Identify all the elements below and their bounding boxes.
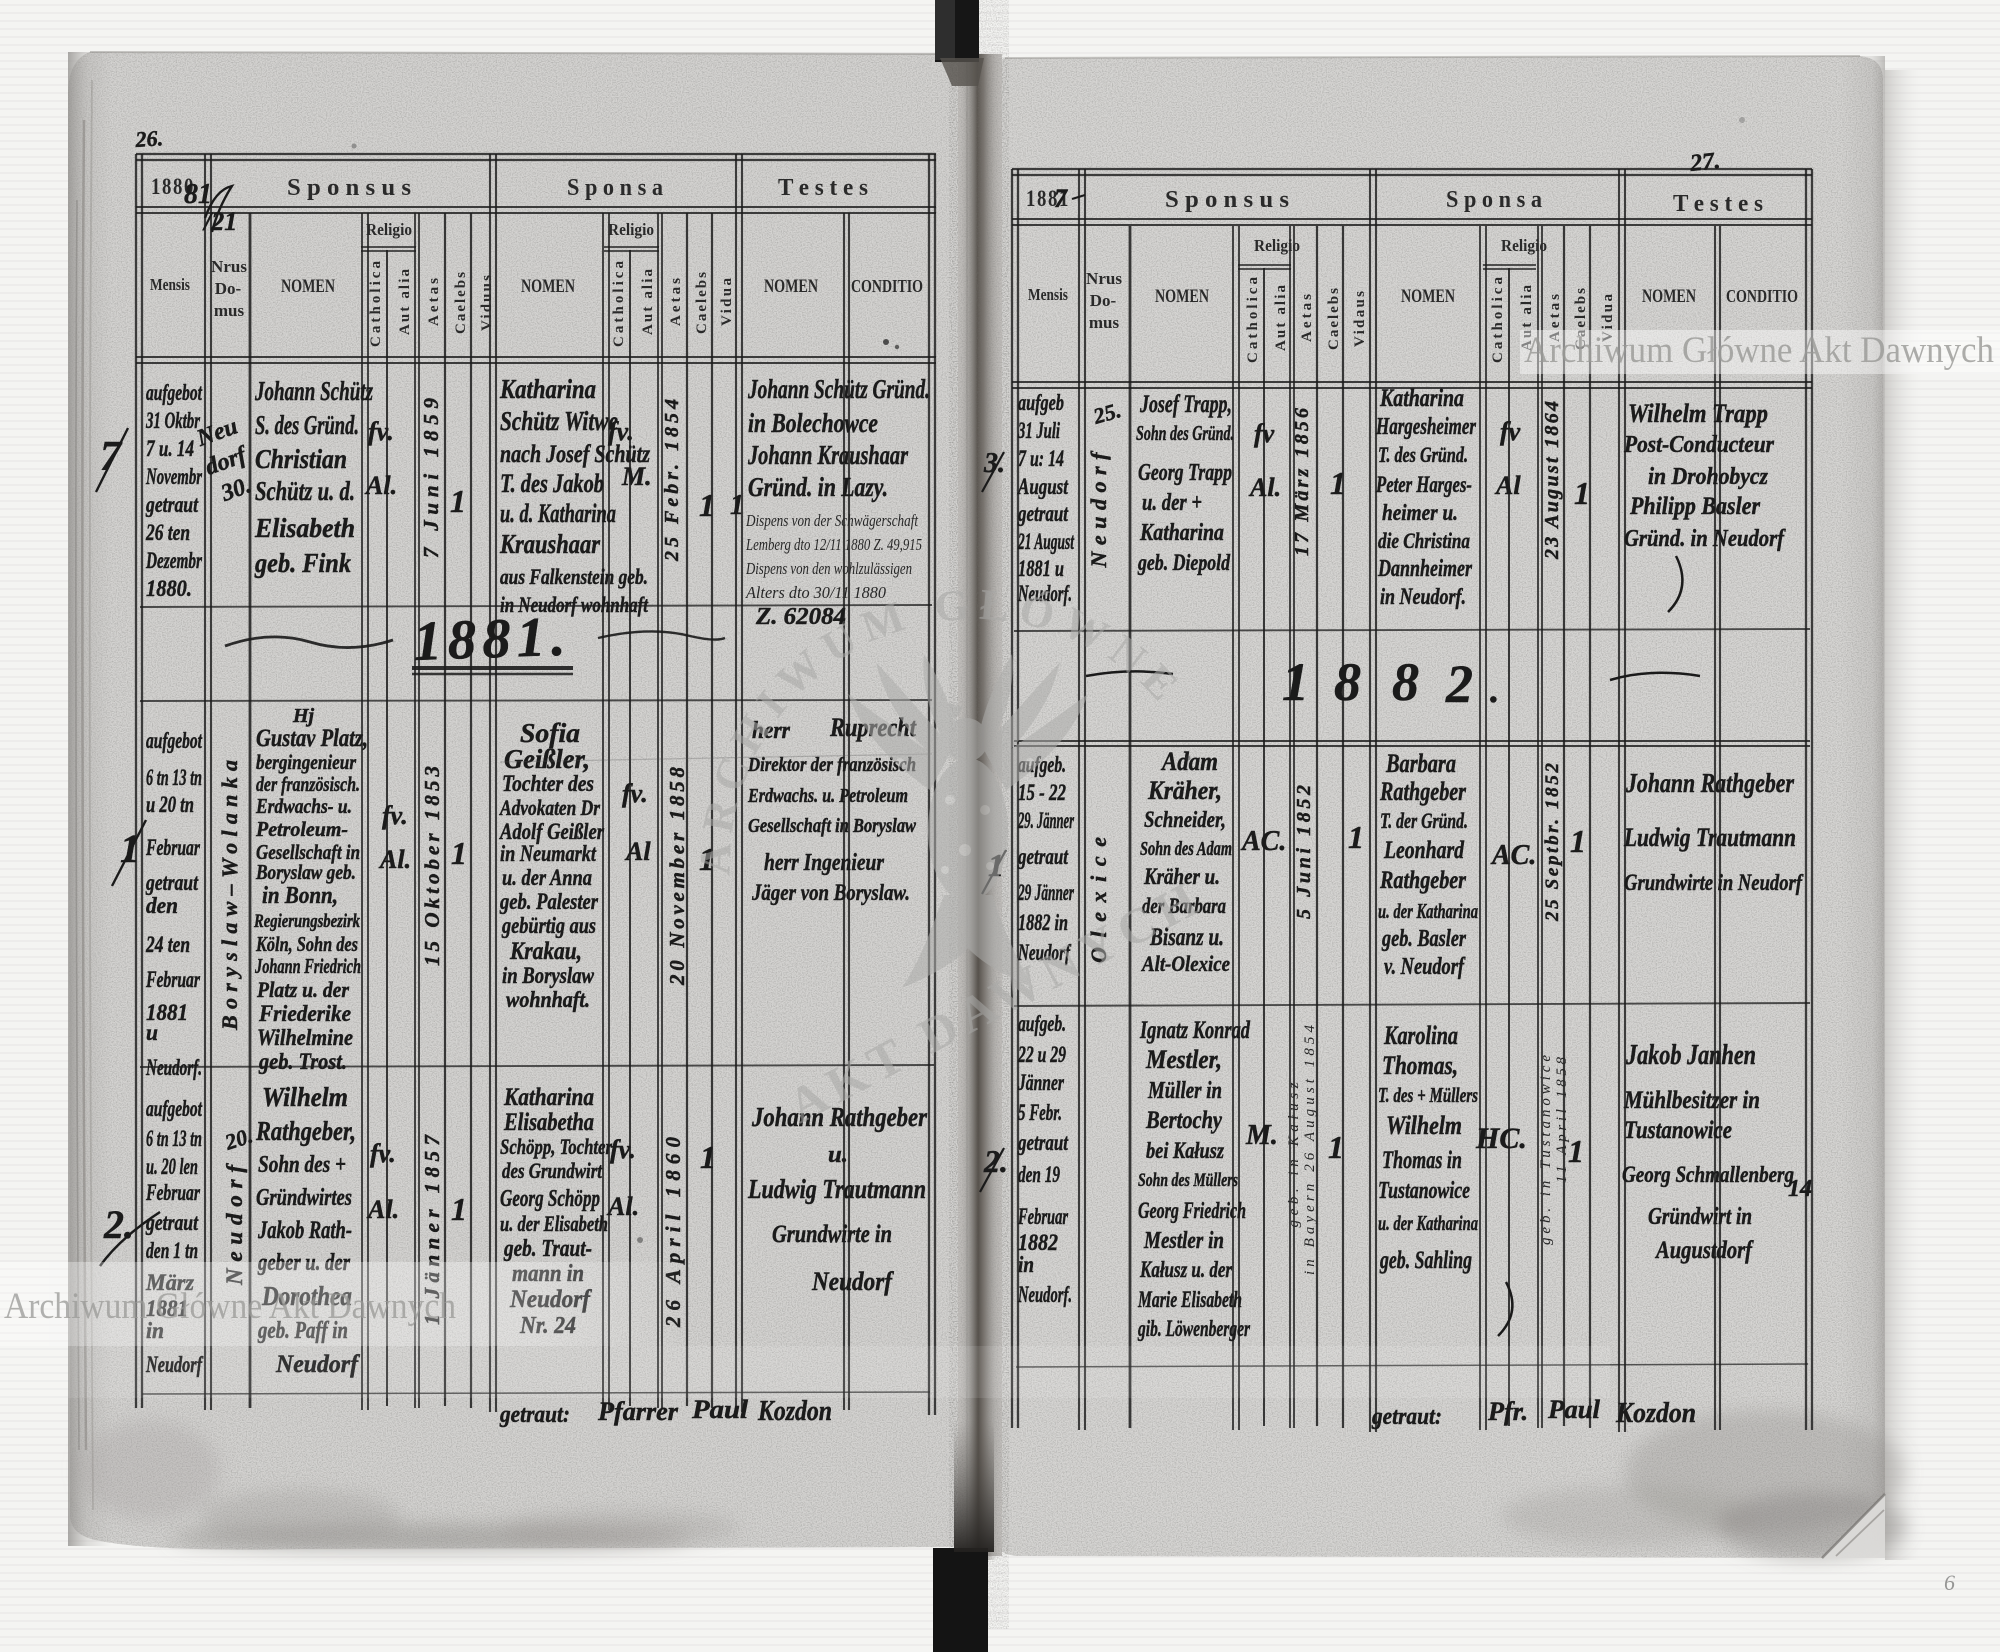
svg-text:7: 7: [1054, 184, 1068, 213]
svg-text:Georg Friedrich: Georg Friedrich: [1138, 1198, 1246, 1223]
svg-text:Do-: Do-: [1090, 291, 1117, 310]
svg-text:NOMEN: NOMEN: [764, 276, 818, 297]
svg-text:Religio: Religio: [366, 220, 412, 239]
svg-text:Karolina: Karolina: [1383, 1021, 1458, 1050]
svg-text:bei Kałusz: bei Kałusz: [1146, 1138, 1224, 1163]
svg-text:T e s t e s: T e s t e s: [778, 175, 868, 201]
svg-text:Catholica: Catholica: [1490, 277, 1506, 364]
svg-text:geb. Palester: geb. Palester: [499, 889, 599, 914]
svg-text:Christian: Christian: [255, 444, 347, 474]
svg-text:.: .: [1490, 669, 1500, 711]
svg-text:Georg Schöpp: Georg Schöpp: [500, 1186, 600, 1212]
svg-text:Elisabetha: Elisabetha: [503, 1109, 594, 1136]
svg-text:Archiwum Główne Akt Dawnych: Archiwum Główne Akt Dawnych: [4, 1286, 456, 1327]
svg-text:Tustanowice: Tustanowice: [1378, 1178, 1470, 1204]
svg-text:Jäger von Boryslaw.: Jäger von Boryslaw.: [751, 880, 910, 905]
svg-text:Paul: Paul: [691, 1395, 749, 1424]
svg-text:Peter Harges-: Peter Harges-: [1375, 472, 1472, 497]
svg-text:Hargesheimer: Hargesheimer: [1375, 414, 1476, 440]
svg-text:Erdwachs. u. Petroleum: Erdwachs. u. Petroleum: [747, 785, 908, 807]
svg-text:Gründ. in Lazy.: Gründ. in Lazy.: [748, 472, 888, 502]
svg-text:Mühlbesitzer in: Mühlbesitzer in: [1623, 1087, 1760, 1114]
svg-text:Paul: Paul: [1547, 1395, 1601, 1424]
svg-text:T e s t e s: T e s t e s: [1673, 191, 1763, 217]
svg-text:Mestler,: Mestler,: [1145, 1045, 1222, 1074]
svg-text:Sohn des Adam: Sohn des Adam: [1140, 838, 1232, 860]
svg-text:Johann Schütz: Johann Schütz: [254, 376, 373, 406]
svg-text:Catholica: Catholica: [368, 261, 384, 348]
svg-text:Boryslaw–Wolanka: Boryslaw–Wolanka: [217, 760, 242, 1031]
svg-text:der französisch.: der französisch.: [256, 772, 360, 796]
svg-text:Februar: Februar: [145, 967, 200, 992]
svg-text:Neudorf: Neudorf: [811, 1267, 894, 1296]
svg-text:Al: Al: [624, 837, 651, 866]
svg-text:Regierungsbezirk: Regierungsbezirk: [253, 911, 360, 932]
svg-text:1: 1: [1282, 652, 1309, 712]
svg-text:getraut:: getraut:: [499, 1402, 570, 1428]
svg-text:Gustav Platz,: Gustav Platz,: [256, 725, 368, 752]
svg-text:Grundwirte in Neudorf: Grundwirte in Neudorf: [1624, 870, 1804, 895]
svg-text:5 Febr.: 5 Febr.: [1018, 1100, 1062, 1125]
svg-text:fv: fv: [1254, 419, 1275, 448]
svg-text:T. des Jakob: T. des Jakob: [500, 469, 604, 498]
svg-text:CONDITIO: CONDITIO: [1726, 286, 1798, 306]
svg-text:fv.: fv.: [610, 1135, 636, 1164]
svg-text:26 ten: 26 ten: [145, 520, 190, 545]
svg-text:Rathgeber: Rathgeber: [1379, 777, 1466, 806]
svg-text:aufgebot: aufgebot: [146, 1096, 202, 1121]
svg-text:Wilhelm: Wilhelm: [262, 1082, 348, 1112]
svg-text:81: 81: [184, 179, 212, 210]
svg-text:Thomas in: Thomas in: [1382, 1147, 1462, 1174]
svg-text:Elisabeth: Elisabeth: [254, 513, 355, 543]
svg-text:AC.: AC.: [1240, 826, 1286, 857]
svg-text:Philipp Basler: Philipp Basler: [1629, 493, 1760, 520]
svg-text:Rathgeber,: Rathgeber,: [255, 1116, 356, 1146]
svg-text:fv: fv: [1500, 417, 1521, 446]
svg-text:Al.: Al.: [366, 1195, 399, 1224]
svg-text:M.: M.: [1245, 1120, 1278, 1151]
svg-text:Ludwig Trautmann: Ludwig Trautmann: [1623, 823, 1796, 852]
svg-text:1: 1: [1570, 823, 1586, 859]
svg-text:S p o n s u s: S p o n s u s: [1165, 187, 1289, 213]
svg-text:Religio: Religio: [1501, 236, 1547, 255]
svg-text:Georg Trapp: Georg Trapp: [1138, 460, 1232, 486]
svg-text:Gründwirtes: Gründwirtes: [256, 1185, 352, 1211]
svg-text:Katharina: Katharina: [499, 374, 596, 404]
svg-text:Adam: Adam: [1160, 747, 1218, 776]
svg-text:Erdwachs- u.: Erdwachs- u.: [255, 794, 352, 818]
svg-text:Al: Al: [1494, 471, 1521, 500]
svg-text:in Bolechowce: in Bolechowce: [748, 408, 878, 438]
svg-text:NOMEN: NOMEN: [1155, 286, 1209, 307]
svg-text:2: 2: [1445, 654, 1473, 714]
svg-text:31 Oktbr: 31 Oktbr: [145, 408, 200, 433]
svg-text:Kozdon: Kozdon: [1615, 1398, 1696, 1429]
svg-text:fv.: fv.: [368, 417, 394, 446]
svg-text:8: 8: [1392, 652, 1419, 712]
svg-text:Caelebs: Caelebs: [694, 272, 710, 334]
svg-text:aufgeb: aufgeb: [1018, 390, 1064, 415]
svg-text:Josef Trapp,: Josef Trapp,: [1139, 391, 1232, 418]
svg-text:1: 1: [700, 1139, 716, 1175]
svg-text:des Grundwirt: des Grundwirt: [502, 1158, 603, 1183]
svg-text:26.: 26.: [134, 125, 164, 152]
svg-text:1880.: 1880.: [146, 576, 192, 601]
svg-text:getraut:: getraut:: [1371, 1404, 1442, 1430]
svg-text:Neudorf.: Neudorf.: [1017, 1282, 1072, 1307]
svg-text:7 u: 14: 7 u: 14: [1018, 446, 1064, 471]
svg-text:u. der Katharina: u. der Katharina: [1378, 1211, 1478, 1235]
svg-text:Marie Elisabeth: Marie Elisabeth: [1137, 1287, 1242, 1312]
svg-text:Mensis: Mensis: [1028, 285, 1068, 304]
svg-text:Kozdon: Kozdon: [757, 1396, 832, 1427]
svg-text:1882 in: 1882 in: [1018, 910, 1068, 935]
svg-text:geb. Trost.: geb. Trost.: [258, 1049, 347, 1074]
svg-text:Vidua: Vidua: [719, 278, 735, 327]
svg-text:Mestler in: Mestler in: [1143, 1228, 1224, 1254]
svg-text:1: 1: [699, 487, 715, 523]
svg-text:u: u: [146, 1020, 158, 1045]
svg-text:Pfarrer: Pfarrer: [597, 1397, 679, 1426]
svg-text:21 August: 21 August: [1017, 529, 1074, 554]
svg-text:Do-: Do-: [215, 279, 242, 298]
svg-text:Johann Friedrich: Johann Friedrich: [254, 954, 361, 978]
svg-text:Novembr: Novembr: [145, 464, 202, 489]
svg-text:15 - 22: 15 - 22: [1018, 780, 1066, 805]
svg-text:wohnhaft.: wohnhaft.: [506, 987, 590, 1012]
svg-text:1: 1: [730, 490, 744, 521]
svg-text:Schütz Witwe: Schütz Witwe: [500, 406, 618, 436]
svg-text:31 Juli: 31 Juli: [1017, 418, 1060, 443]
svg-text:Krakau,: Krakau,: [509, 938, 582, 965]
svg-text:NOMEN: NOMEN: [521, 276, 575, 297]
svg-text:Leonhard: Leonhard: [1383, 837, 1464, 864]
svg-text:Catholica: Catholica: [1245, 277, 1261, 364]
svg-text:1: 1: [1568, 1133, 1584, 1169]
svg-text:Nrus: Nrus: [1086, 269, 1122, 288]
svg-text:Petroleum-: Petroleum-: [255, 817, 348, 841]
svg-text:u. der Anna: u. der Anna: [502, 865, 592, 890]
svg-text:S. des Gründ.: S. des Gründ.: [255, 410, 359, 440]
svg-text:Barbara: Barbara: [1385, 749, 1456, 778]
svg-text:u. 20 len: u. 20 len: [146, 1154, 198, 1179]
svg-text:u. der Katharina: u. der Katharina: [1378, 899, 1478, 923]
svg-text:6: 6: [1944, 1570, 1955, 1595]
svg-text:Wilhelm Trapp: Wilhelm Trapp: [1628, 399, 1768, 428]
svg-text:17 März 1856: 17 März 1856: [1291, 408, 1313, 556]
svg-text:1: 1: [451, 835, 467, 871]
svg-text:in Boryslaw: in Boryslaw: [502, 963, 595, 988]
svg-text:getraut: getraut: [145, 492, 198, 517]
svg-text:Mensis: Mensis: [150, 275, 190, 294]
svg-text:Tochter des: Tochter des: [502, 771, 594, 796]
svg-text:getraut: getraut: [145, 1210, 198, 1235]
svg-text:Johann Kraushaar: Johann Kraushaar: [747, 440, 908, 470]
svg-text:Katharina: Katharina: [1379, 385, 1464, 412]
svg-text:fv.: fv.: [622, 779, 648, 808]
svg-text:den 19: den 19: [1018, 1162, 1060, 1187]
svg-text:S p o n s a: S p o n s a: [1446, 187, 1542, 213]
svg-text:Dezembr: Dezembr: [145, 548, 202, 573]
svg-text:Jakob Rath-: Jakob Rath-: [257, 1217, 352, 1244]
svg-text:den 1 tn: den 1 tn: [146, 1238, 198, 1263]
svg-text:aufgebot: aufgebot: [146, 728, 202, 753]
svg-text:Caelebs: Caelebs: [453, 272, 469, 334]
svg-text:Georg Schmallenberg: Georg Schmallenberg: [1622, 1162, 1794, 1187]
svg-text:in Neumarkt: in Neumarkt: [500, 841, 596, 866]
svg-text:Jakob Janhen: Jakob Janhen: [1625, 1040, 1756, 1071]
svg-text:Dispens von den wohlzulässigen: Dispens von den wohlzulässigen: [745, 559, 912, 578]
svg-text:Al.: Al.: [364, 471, 397, 500]
svg-text:Kraushaar: Kraushaar: [499, 529, 600, 559]
svg-text:in: in: [1018, 1252, 1034, 1277]
svg-text:Rathgeber: Rathgeber: [1379, 867, 1466, 894]
svg-text:Müller in: Müller in: [1147, 1078, 1222, 1104]
svg-text:6 tn 13 tn: 6 tn 13 tn: [146, 765, 202, 790]
svg-text:Grundwirte in: Grundwirte in: [772, 1221, 892, 1248]
svg-text:Johann Schütz Gründ.: Johann Schütz Gründ.: [747, 374, 930, 404]
svg-text:Alt-Olexice: Alt-Olexice: [1140, 951, 1230, 976]
svg-text:Tustanowice: Tustanowice: [1624, 1117, 1732, 1144]
svg-text:T. des + Müllers: T. des + Müllers: [1378, 1083, 1478, 1107]
svg-text:gebürtig aus: gebürtig aus: [501, 913, 596, 938]
svg-text:Boryslaw geb.: Boryslaw geb.: [255, 860, 356, 884]
svg-text:20 November 1858: 20 November 1858: [665, 767, 689, 987]
svg-text:Alters dto 30/11 1880: Alters dto 30/11 1880: [745, 583, 886, 602]
svg-text:geb. Diepold: geb. Diepold: [1137, 550, 1230, 575]
svg-text:Februar: Februar: [145, 1180, 200, 1205]
svg-text:NOMEN: NOMEN: [281, 276, 335, 297]
svg-text:Augustdorf: Augustdorf: [1654, 1237, 1754, 1264]
svg-text:Caelebs: Caelebs: [1326, 288, 1342, 350]
svg-text:Archiwum Główne Akt Dawnych: Archiwum Główne Akt Dawnych: [1524, 330, 1994, 371]
svg-text:Dannheimer: Dannheimer: [1377, 556, 1472, 582]
svg-text:geb. Sahling: geb. Sahling: [1379, 1247, 1472, 1274]
svg-text:Ignatz Konrad: Ignatz Konrad: [1139, 1017, 1250, 1044]
svg-text:1881.: 1881.: [412, 606, 572, 673]
svg-text:AC.: AC.: [1490, 840, 1536, 871]
svg-text:Februar: Februar: [1017, 1204, 1068, 1229]
svg-text:29. Jänner: 29. Jänner: [1017, 808, 1074, 833]
svg-text:u. der Elisabeth: u. der Elisabeth: [500, 1211, 608, 1236]
svg-text:getraut: getraut: [1017, 844, 1068, 869]
svg-text:Februar: Februar: [145, 835, 200, 860]
svg-text:Bertochy: Bertochy: [1145, 1107, 1223, 1134]
svg-text:HC.: HC.: [1475, 1122, 1527, 1155]
svg-text:Geißler,: Geißler,: [504, 744, 590, 774]
svg-text:2.: 2.: [103, 1202, 134, 1247]
svg-text:in Neudorf.: in Neudorf.: [1380, 584, 1466, 609]
svg-text:1881 u: 1881 u: [1018, 556, 1064, 581]
svg-text:Al.: Al.: [606, 1192, 639, 1221]
svg-text:Katharina: Katharina: [503, 1084, 594, 1111]
svg-text:Wilhelmine: Wilhelmine: [257, 1025, 353, 1050]
svg-text:Neudorf.: Neudorf.: [145, 1055, 202, 1080]
svg-text:die Christina: die Christina: [1378, 528, 1470, 553]
svg-text:Kräher,: Kräher,: [1147, 776, 1222, 805]
svg-text:1: 1: [1348, 819, 1364, 855]
svg-text:heimer u.: heimer u.: [1382, 500, 1458, 525]
svg-text:aufgebot: aufgebot: [146, 380, 202, 405]
svg-text:getraut: getraut: [145, 870, 198, 895]
svg-text:in Bonn,: in Bonn,: [262, 883, 338, 909]
svg-text:25 Febr. 1854: 25 Febr. 1854: [661, 399, 683, 562]
svg-text:Gründwirt in: Gründwirt in: [1648, 1204, 1752, 1230]
svg-text:Advokaten Dr: Advokaten Dr: [498, 795, 600, 820]
svg-text:mus: mus: [1089, 313, 1120, 332]
svg-text:u.: u.: [828, 1142, 848, 1168]
svg-text:Dispens von der Schwägerschaft: Dispens von der Schwägerschaft: [745, 511, 919, 530]
svg-text:in Drohobycz: in Drohobycz: [1648, 464, 1769, 490]
svg-text:Köln, Sohn des: Köln, Sohn des: [255, 932, 358, 956]
svg-text:Gründ. in Neudorf: Gründ. in Neudorf: [1624, 526, 1786, 552]
svg-text:Johann Rathgeber: Johann Rathgeber: [1625, 768, 1794, 798]
svg-text:fv.: fv.: [370, 1139, 396, 1168]
svg-text:Ludwig Trautmann: Ludwig Trautmann: [747, 1174, 926, 1204]
svg-text:Gesellschaft in Boryslaw: Gesellschaft in Boryslaw: [748, 815, 917, 837]
svg-text:14: 14: [1788, 1176, 1812, 1202]
svg-text:7: 7: [100, 434, 123, 480]
svg-text:1: 1: [451, 1191, 467, 1227]
svg-text:geb. Fink: geb. Fink: [254, 548, 351, 578]
svg-text:29 Jänner: 29 Jänner: [1017, 880, 1074, 905]
svg-text:Post-Conducteur: Post-Conducteur: [1623, 432, 1774, 458]
svg-text:Kałusz u. der: Kałusz u. der: [1139, 1257, 1233, 1282]
svg-text:6 tn 13 tn: 6 tn 13 tn: [146, 1126, 202, 1151]
svg-text:herr Ingenieur: herr Ingenieur: [764, 850, 885, 876]
svg-text:S p o n s a: S p o n s a: [567, 175, 663, 201]
svg-text:Schütz u. d.: Schütz u. d.: [255, 476, 355, 506]
svg-text:mus: mus: [214, 301, 245, 320]
svg-text:geb. Basler: geb. Basler: [1381, 926, 1466, 952]
svg-text:Hj: Hj: [292, 705, 315, 727]
svg-text:gib. Löwenberger: gib. Löwenberger: [1137, 1316, 1250, 1341]
svg-text:S p o n s u s: S p o n s u s: [287, 175, 411, 201]
svg-text:Al.: Al.: [378, 845, 411, 874]
svg-text:u. d. Katharina: u. d. Katharina: [500, 499, 616, 528]
svg-text:Friederike: Friederike: [258, 1001, 351, 1026]
svg-text:8: 8: [1334, 652, 1361, 712]
svg-text:24 ten: 24 ten: [145, 932, 190, 957]
svg-text:getraut: getraut: [1017, 501, 1068, 526]
svg-text:T. der Gründ.: T. der Gründ.: [1380, 808, 1468, 833]
svg-text:getraut: getraut: [1017, 1130, 1068, 1155]
svg-text:Lemberg dto 12/11 1880 Z. 49,9: Lemberg dto 12/11 1880 Z. 49,915: [745, 535, 922, 554]
svg-text:22 u 29: 22 u 29: [1017, 1042, 1066, 1067]
svg-text:Platz u. der: Platz u. der: [256, 977, 349, 1002]
svg-text:den: den: [146, 893, 178, 918]
svg-text:M.: M.: [621, 462, 652, 491]
svg-text:Katharina: Katharina: [1139, 520, 1224, 546]
svg-text:T. des Gründ.: T. des Gründ.: [1378, 442, 1468, 467]
svg-text:August: August: [1017, 474, 1069, 499]
svg-text:Sohn des +: Sohn des +: [258, 1152, 346, 1178]
svg-text:27.: 27.: [1688, 148, 1722, 177]
svg-text:15 Oktober 1853: 15 Oktober 1853: [420, 766, 444, 966]
svg-text:/21: /21: [202, 207, 237, 236]
svg-text:u. der +: u. der +: [1142, 490, 1202, 516]
svg-text:Sohn des Müllers: Sohn des Müllers: [1138, 1170, 1238, 1191]
svg-text:fv.: fv.: [382, 801, 408, 830]
svg-text:CONDITIO: CONDITIO: [851, 276, 923, 296]
svg-text:7 u. 14: 7 u. 14: [146, 436, 194, 461]
svg-text:1: 1: [1328, 1129, 1344, 1165]
svg-text:Nrus: Nrus: [211, 257, 247, 276]
svg-text:Sohn des Gründ.: Sohn des Gründ.: [1136, 421, 1234, 445]
svg-text:Al.: Al.: [1248, 473, 1281, 502]
svg-text:aus Falkenstein geb.: aus Falkenstein geb.: [500, 564, 648, 589]
svg-text:Jänner: Jänner: [1017, 1070, 1064, 1095]
svg-text:Religio: Religio: [608, 220, 654, 239]
svg-text:Schneider,: Schneider,: [1144, 807, 1226, 832]
svg-text:1: 1: [1330, 465, 1346, 501]
svg-text:Pfr.: Pfr.: [1487, 1397, 1528, 1426]
svg-text:bergingenieur: bergingenieur: [256, 750, 357, 774]
svg-text:u 20 tn: u 20 tn: [146, 792, 194, 817]
svg-text:Thomas,: Thomas,: [1382, 1051, 1458, 1080]
svg-text:geb. Traut-: geb. Traut-: [503, 1236, 592, 1262]
svg-text:Wilhelm: Wilhelm: [1386, 1111, 1462, 1140]
svg-text:v. Neudorf: v. Neudorf: [1384, 954, 1466, 980]
svg-text:Schöpp, Tochter: Schöpp, Tochter: [500, 1134, 612, 1159]
svg-text:fv.: fv.: [608, 417, 634, 446]
svg-text:NOMEN: NOMEN: [1401, 286, 1455, 307]
svg-text:1: 1: [1574, 475, 1590, 511]
svg-text:Catholica: Catholica: [611, 261, 627, 348]
svg-text:1: 1: [450, 483, 466, 519]
svg-text:NOMEN: NOMEN: [1642, 286, 1696, 307]
svg-text:Religio: Religio: [1254, 236, 1300, 255]
svg-text:3.: 3.: [983, 448, 1005, 479]
